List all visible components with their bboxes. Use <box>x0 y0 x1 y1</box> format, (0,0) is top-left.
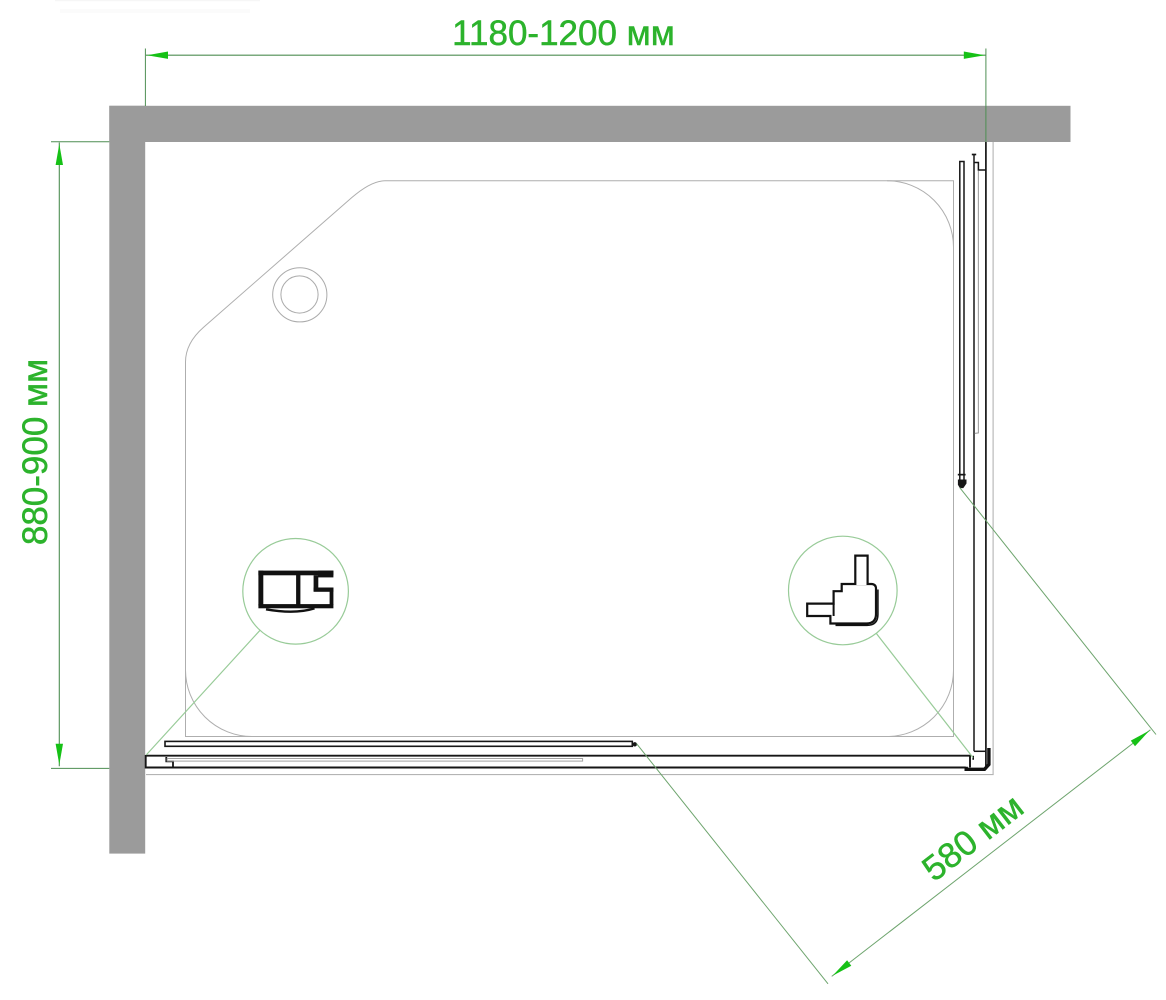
svg-text:1180-1200 мм: 1180-1200 мм <box>452 14 675 53</box>
svg-text:880-900 мм: 880-900 мм <box>16 359 55 545</box>
